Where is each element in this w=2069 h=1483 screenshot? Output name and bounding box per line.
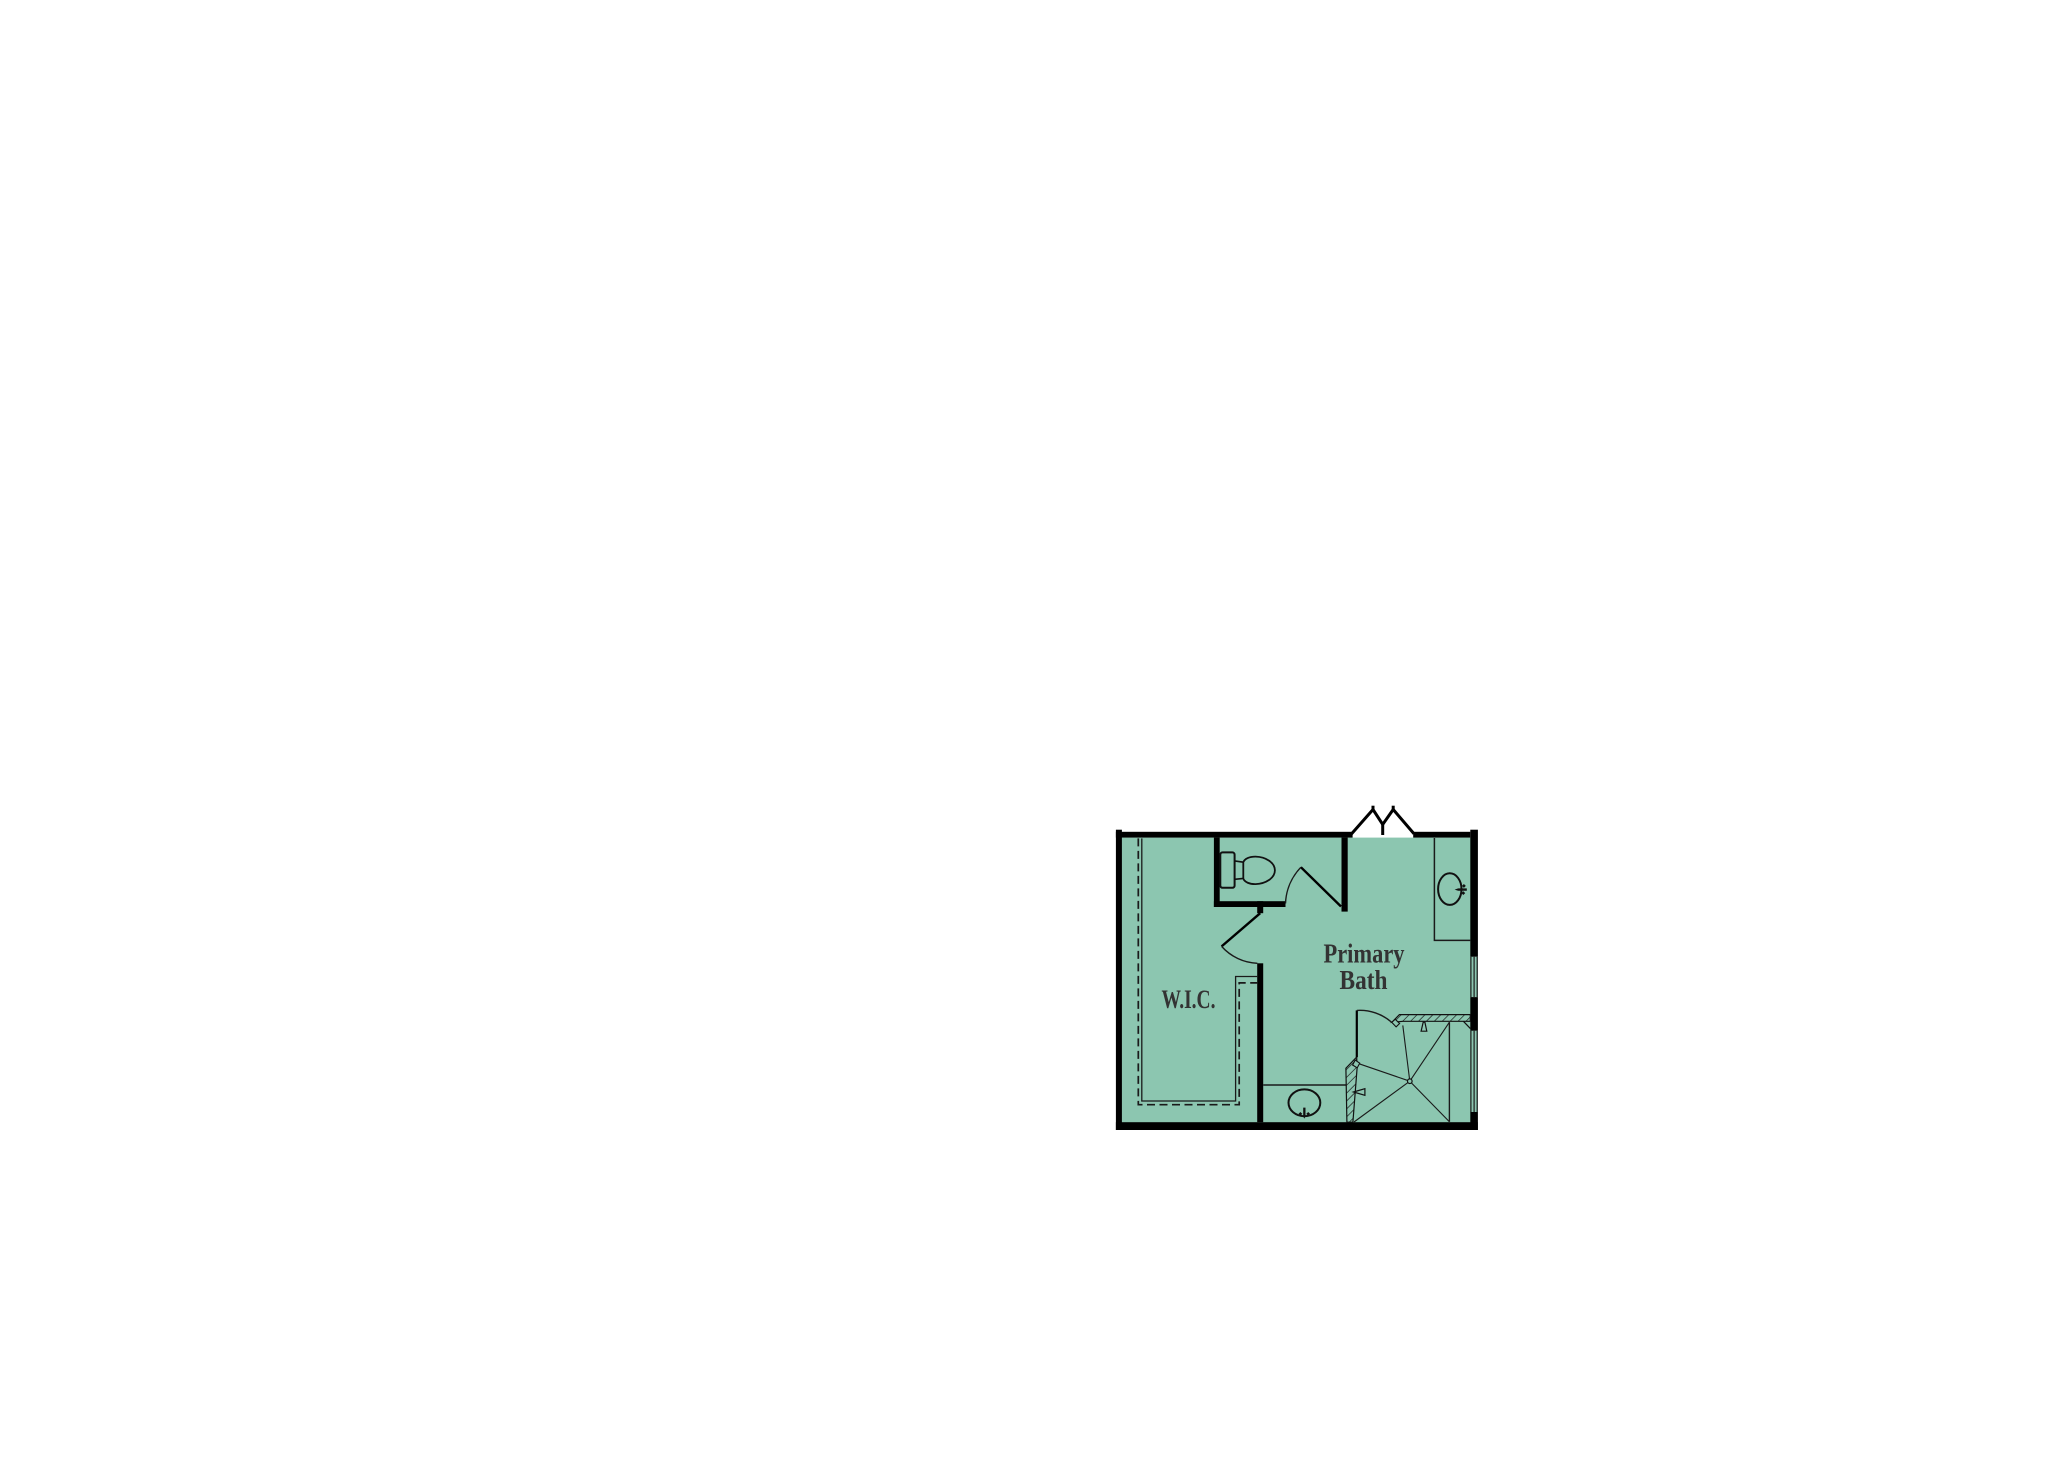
svg-text:W.I.C.: W.I.C.	[1162, 985, 1216, 1014]
svg-text:Bath: Bath	[1340, 965, 1388, 995]
svg-text:Primary: Primary	[1324, 938, 1405, 968]
